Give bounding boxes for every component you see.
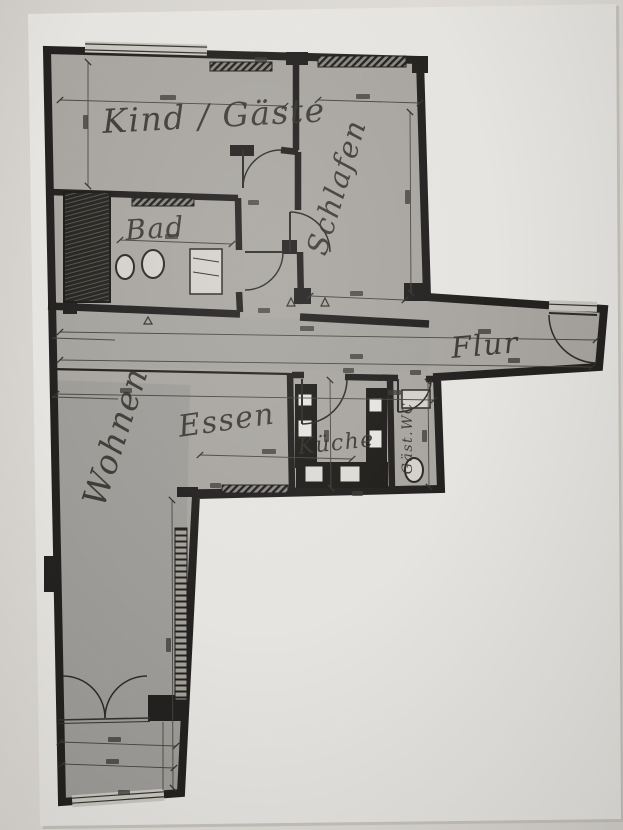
room-label-flur: Flur: [449, 325, 521, 365]
bathtub: [64, 192, 110, 302]
room-label-bad: Bad: [123, 210, 186, 247]
floor-plan-photo: Kind / Gäste Schlafen Bad Flur Wohnen Es…: [0, 0, 623, 830]
floor-plan-drawing: Kind / Gäste Schlafen Bad Flur Wohnen Es…: [0, 0, 623, 830]
room-label-gaeste-wc: Gäst.WC: [400, 402, 416, 474]
